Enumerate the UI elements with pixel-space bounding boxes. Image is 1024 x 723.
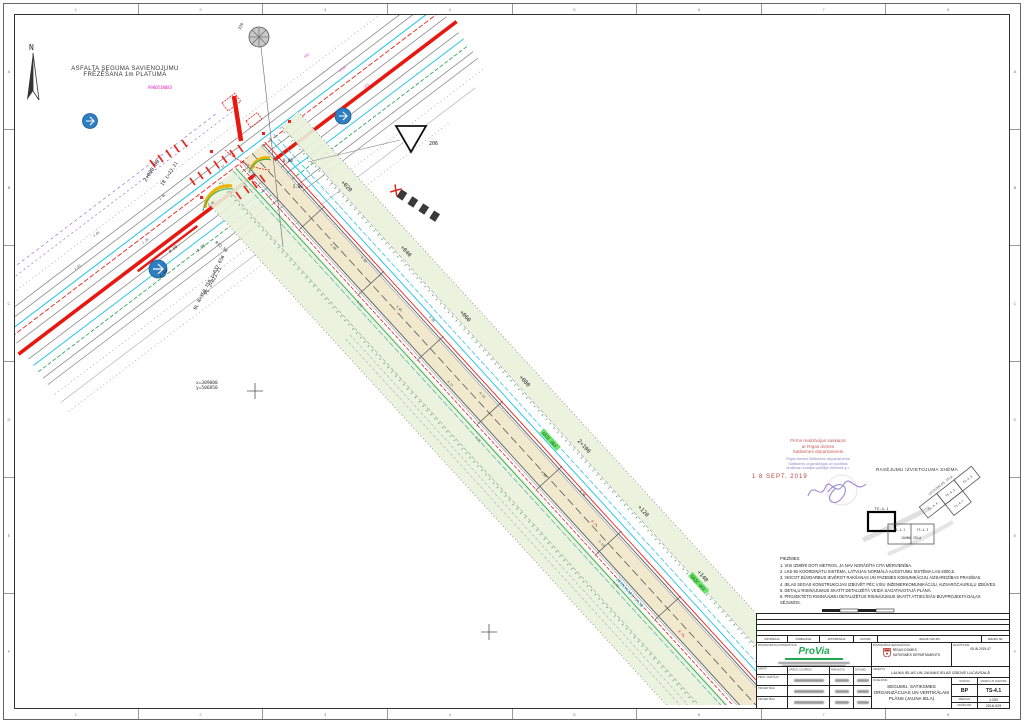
milling-note: ASFALTA SEGUMA SAVIENOJUMU FRĒZĒŠANA 1m … (44, 66, 206, 78)
scheme-current-sheet: TS-4.1 (875, 506, 889, 511)
sign-role: PROJEKTĒJA (757, 696, 787, 708)
sign-header-amats: AMATS (757, 666, 787, 674)
svg-text:TS-4.2: TS-4.2 (894, 528, 906, 532)
svg-text:2.00: 2.00 (293, 184, 303, 189)
designer-cell: BŪVPROJEKTA IZSTRĀDĀTĀJS: ProVia (757, 643, 871, 666)
north-arrow: N (22, 40, 44, 110)
scheme-street-horizontal: JAUNA IELA (901, 536, 921, 540)
stage-header: STADIJA (951, 677, 977, 684)
svg-text:0.60: 0.60 (168, 244, 179, 254)
red-marking-bar (234, 96, 241, 141)
client-cell: BŪVNIECĪBAS IEROSINĀTĀJS: RĪGAS DOMES SA… (871, 643, 951, 666)
sheet-layout-scheme: TS-4.1 TS-4.2 TS-4.3 JAUNA IELA TS-4.4TS… (858, 462, 1018, 562)
svg-text:TS-4.6: TS-4.6 (962, 474, 973, 484)
new-street-corridor: +020 +040 +060 +080 2+100 +120 +140 GĀZE… (203, 112, 830, 723)
archive-label: ARHĪVA NR. (951, 702, 977, 708)
archive-value: 2016-029 (977, 702, 1009, 708)
svg-text:990051N083: 990051N083 (148, 85, 173, 90)
svg-text:0.80: 0.80 (283, 158, 293, 163)
svg-text:3.05: 3.05 (92, 230, 100, 238)
drawing-title-cell: RASĒJUMS: SEGUMU, SATIKSMES ORGANIZĀCIJA… (871, 677, 951, 708)
order-cell: PASŪTĪJUMS: 05-IN-2019-47 (951, 643, 1009, 666)
svg-text:d63: d63 (303, 52, 310, 59)
sign-header-datums: DATUMS (853, 666, 871, 674)
border-grid-bottom: 12345678 (14, 709, 1010, 719)
svg-text:IB L=23.21: IB L=23.21 (160, 160, 180, 187)
gas-label: GĀZE d63 (541, 431, 558, 449)
drawing-sheet: +020 +040 +060 +080 2+100 +120 +140 GĀZE… (0, 0, 1024, 723)
svg-text:1.20: 1.20 (141, 237, 149, 245)
sign-role: PROJ. VADĪTĀJS (757, 674, 787, 685)
junction-details: 326 206 (64, 21, 497, 640)
company-logo: ProVia (798, 646, 829, 657)
company-logo-bar (785, 658, 843, 660)
stage-value: BP (951, 684, 977, 696)
notes-title: PIEZĪMES: (780, 556, 1000, 562)
svg-text:N: N (29, 43, 34, 52)
svg-text:TS-4.3: TS-4.3 (917, 528, 929, 532)
mark-header: MARKA UN NUMURS (977, 677, 1009, 684)
riga-coat-of-arms-icon (883, 648, 891, 657)
border-grid-right: ABCDEF (1010, 14, 1020, 709)
svg-text:206: 206 (429, 141, 438, 147)
sheet-number: TS-4.1 (977, 684, 1009, 696)
svg-text:TS-4.4: TS-4.4 (927, 501, 938, 511)
svg-text:2.83: 2.83 (73, 263, 81, 271)
revision-header-row: IZSTRĀDĀJA PĀRBAUDĪJA APSTIPRINĀJA DATUM… (757, 636, 1009, 643)
svg-text:TS-4.7: TS-4.7 (953, 499, 964, 509)
border-grid-top: 12345678 (14, 4, 1010, 14)
sign-header-vards: VĀRDS, UZVĀRDS (787, 666, 829, 674)
notes-block: PIEZĪMES: 1. VISI IZMĒRI DOTI METROS, JA… (780, 556, 1000, 606)
svg-text:326: 326 (237, 21, 245, 30)
coordinate-label: x=309000 y=506850 (196, 381, 218, 392)
svg-text:1.75: 1.75 (196, 243, 207, 253)
title-block: IZSTRĀDĀJA PĀRBAUDĪJA APSTIPRINĀJA DATUM… (756, 613, 1010, 709)
hatched-bar (390, 184, 445, 224)
svg-text:TS-4.5: TS-4.5 (945, 488, 956, 498)
sign-header-paraksts: PARAKSTS (829, 666, 853, 674)
object-cell: OBJEKTS: LAUKA IELAS UN JAUNAS IELAS IZB… (871, 666, 1009, 677)
svg-text:2.46: 2.46 (158, 193, 166, 201)
sign-role: PROJEKTĒJA (757, 685, 787, 696)
border-grid-left: ABCDEF (4, 14, 14, 709)
